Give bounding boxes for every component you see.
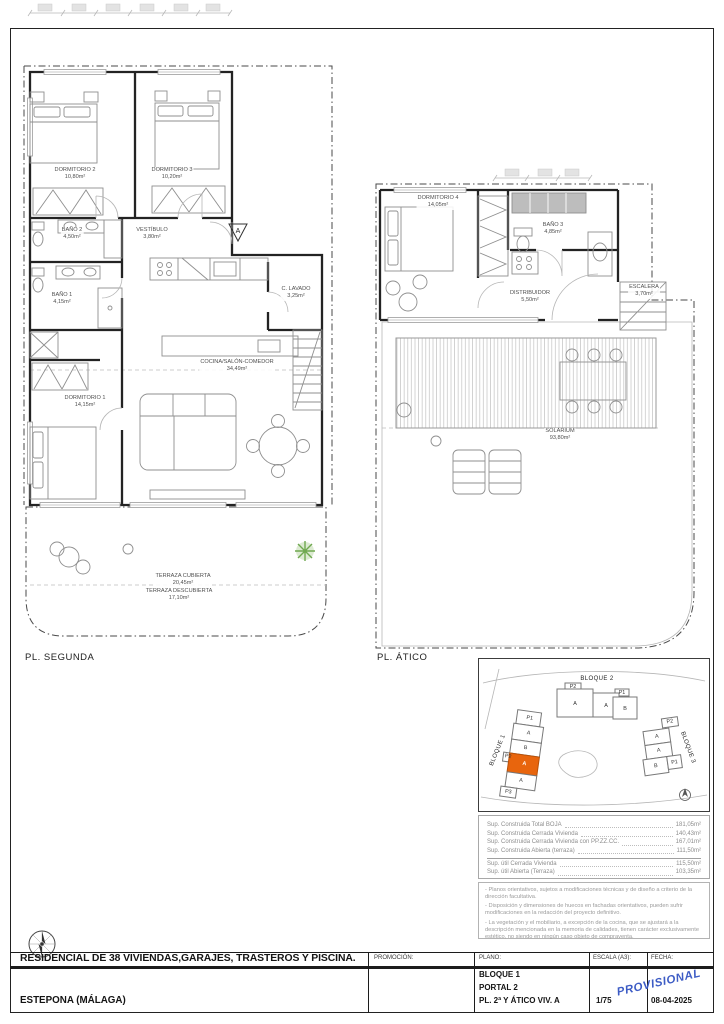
room-label-dormitorio-1: DORMITORIO 1 14,15m²	[64, 395, 107, 410]
dotted-leader	[565, 827, 673, 828]
room-area: 3,70m²	[629, 291, 659, 298]
siteplan-label-p2: P2	[570, 684, 577, 690]
fecha-value: 08-04-2025	[651, 996, 692, 1005]
room-name: DORMITORIO 3	[152, 167, 193, 174]
siteplan-label-p2: P2	[666, 718, 673, 725]
area-row: Sup. Construida Abierta (terraza) 111,50…	[487, 847, 701, 856]
dotted-leader	[560, 866, 673, 867]
area-value: 115,50m²	[676, 860, 701, 869]
room-label-dormitorio-2: DORMITORIO 2 10,80m²	[54, 167, 97, 182]
siteplan-inset: BLOQUE 2 P2 A A P1 B BLOQUE 1 P1 A B P2 …	[478, 658, 710, 812]
plano-line-planta: PL. 2ª Y ÁTICO VIV. A	[479, 996, 560, 1005]
room-name: BAÑO 1	[52, 292, 73, 299]
escala-value: 1/75	[596, 996, 612, 1005]
drawing-sheet: DORMITORIO 2 10,80m² DORMITORIO 3 10,20m…	[0, 0, 724, 1024]
room-name: BAÑO 3	[543, 222, 564, 229]
area-value: 103,35m²	[676, 868, 701, 877]
plan-segunda	[24, 66, 332, 636]
room-name: BAÑO 2	[62, 227, 83, 234]
titleblock-divider	[589, 952, 590, 1013]
room-label-terraza-cubierta: TERRAZA CUBIERTA 20,45m²	[154, 573, 211, 588]
plan-atico	[376, 184, 694, 648]
siteplan-label-b: B	[654, 763, 658, 769]
area-row: Sup. Construida Total BOJA 181,05m²	[487, 821, 701, 830]
room-label-escalera: ESCALERA 3,70m²	[628, 284, 660, 299]
dotted-leader	[622, 845, 672, 846]
table-divider	[487, 858, 701, 859]
room-label-solarium: SOLARIUM 93,80m²	[544, 428, 575, 443]
room-area: 14,05m²	[418, 202, 459, 209]
room-name: DORMITORIO 4	[418, 195, 459, 202]
room-area: 34,49m²	[200, 366, 273, 373]
room-area: 3,25m²	[281, 293, 310, 300]
dotted-leader	[578, 853, 674, 854]
titleblock-divider	[474, 952, 475, 1013]
caption-pl-atico: PL. ÁTICO	[377, 652, 427, 663]
area-row: Sup. útil Abierta (Terraza) 103,35m²	[487, 868, 701, 877]
room-name: TERRAZA DESCUBIERTA	[146, 588, 213, 595]
room-label-vestibulo: VESTÍBULO 3,80m²	[135, 227, 168, 242]
siteplan-label-p1: P1	[619, 690, 626, 696]
siteplan-label-a: A	[657, 747, 661, 753]
plano-label: PLANO:	[479, 955, 501, 961]
area-value: 111,50m²	[677, 847, 701, 856]
area-label: Sup. útil Cerrada Vivienda	[487, 860, 557, 869]
room-area: 93,80m²	[545, 435, 574, 442]
room-area: 10,80m²	[55, 174, 96, 181]
siteplan-label-a: A	[573, 701, 577, 707]
room-label-cocina-salon: COCINA/SALÓN-COMEDOR 34,49m²	[199, 359, 274, 374]
caption-pl-segunda: PL. SEGUNDA	[25, 652, 94, 663]
room-area: 17,10m²	[146, 595, 213, 602]
titleblock-divider	[368, 952, 369, 1013]
dotted-leader	[558, 875, 673, 876]
area-label: Sup. Construida Cerrada Vivienda	[487, 830, 578, 839]
area-row: Sup. Construida Cerrada Vivienda 140,43m…	[487, 830, 701, 839]
escala-label: ESCALA (A3):	[593, 955, 631, 961]
area-value: 181,05m²	[676, 821, 701, 830]
area-table: Sup. Construida Total BOJA 181,05m² Sup.…	[478, 815, 710, 879]
siteplan-label-bloque3: BLOQUE 3	[679, 731, 696, 764]
room-name: DORMITORIO 1	[65, 395, 106, 402]
siteplan-label-p1: P1	[671, 759, 678, 766]
dotted-leader	[581, 836, 673, 837]
room-area: 4,50m²	[62, 234, 83, 241]
room-name: TERRAZA CUBIERTA	[155, 573, 210, 580]
room-area: 3,80m²	[136, 234, 167, 241]
fecha-label: FECHA:	[651, 955, 673, 961]
room-area: 4,85m²	[543, 229, 564, 236]
room-label-bano-3: BAÑO 3 4,85m²	[542, 222, 565, 237]
room-name: DORMITORIO 2	[55, 167, 96, 174]
room-label-dormitorio-4: DORMITORIO 4 14,05m²	[417, 195, 460, 210]
room-label-terraza-descubierta: TERRAZA DESCUBIERTA 17,10m²	[145, 588, 214, 603]
room-name: ESCALERA	[629, 284, 659, 291]
room-area: 10,20m²	[152, 174, 193, 181]
siteplan-label-a: A	[604, 703, 608, 709]
area-value: 140,43m²	[676, 830, 701, 839]
area-label: Sup. útil Abierta (Terraza)	[487, 868, 555, 877]
room-name: COCINA/SALÓN-COMEDOR	[200, 359, 273, 366]
room-name: C. LAVADO	[281, 286, 310, 293]
area-label: Sup. Construida Cerrada Vivienda con PP.…	[487, 838, 619, 847]
area-label: Sup. Construida Total BOJA	[487, 821, 562, 830]
area-row: Sup. Construida Cerrada Vivienda con PP.…	[487, 838, 701, 847]
notes-box: - Planos orientativos, sujetos a modific…	[478, 882, 710, 939]
location-label: ESTEPONA (MÁLAGA)	[20, 995, 126, 1006]
plant-icon	[295, 541, 315, 561]
room-area: 14,15m²	[65, 402, 106, 409]
titleblock-thick-line	[10, 966, 714, 969]
room-label-lavado: C. LAVADO 3,25m²	[280, 286, 311, 301]
section-marker-label: A	[235, 227, 242, 236]
siteplan-label-b: B	[623, 706, 627, 712]
area-value: 167,01m²	[676, 838, 701, 847]
room-name: DISTRIBUIDOR	[510, 290, 550, 297]
area-label: Sup. Construida Abierta (terraza)	[487, 847, 575, 856]
room-label-bano-1: BAÑO 1 4,15m²	[51, 292, 74, 307]
siteplan-label-bloque2: BLOQUE 2	[580, 676, 613, 682]
area-row: Sup. útil Cerrada Vivienda 115,50m²	[487, 860, 701, 869]
plano-line-bloque: BLOQUE 1	[479, 970, 520, 979]
plano-line-portal: PORTAL 2	[479, 983, 518, 992]
room-label-bano-2: BAÑO 2 4,50m²	[61, 227, 84, 242]
room-area: 5,50m²	[510, 297, 550, 304]
dimension-ticks	[28, 4, 592, 181]
room-name: SOLARIUM	[545, 428, 574, 435]
room-label-dormitorio-3: DORMITORIO 3 10,20m²	[151, 167, 194, 182]
note-line: - Planos orientativos, sujetos a modific…	[485, 887, 703, 901]
room-label-distribuidor: DISTRIBUIDOR 5,50m²	[509, 290, 551, 305]
promocion-label: PROMOCIÓN:	[374, 955, 413, 961]
note-line: - Disposición y dimensiones de huecos en…	[485, 903, 703, 917]
room-name: VESTÍBULO	[136, 227, 167, 234]
project-title: RESIDENCIAL DE 38 VIVIENDAS,GARAJES, TRA…	[20, 953, 356, 964]
siteplan-label-a: A	[655, 734, 659, 740]
room-area: 20,45m²	[155, 580, 210, 587]
room-area: 4,15m²	[52, 299, 73, 306]
note-line: - La vegetación y el mobiliario, a excep…	[485, 920, 703, 941]
